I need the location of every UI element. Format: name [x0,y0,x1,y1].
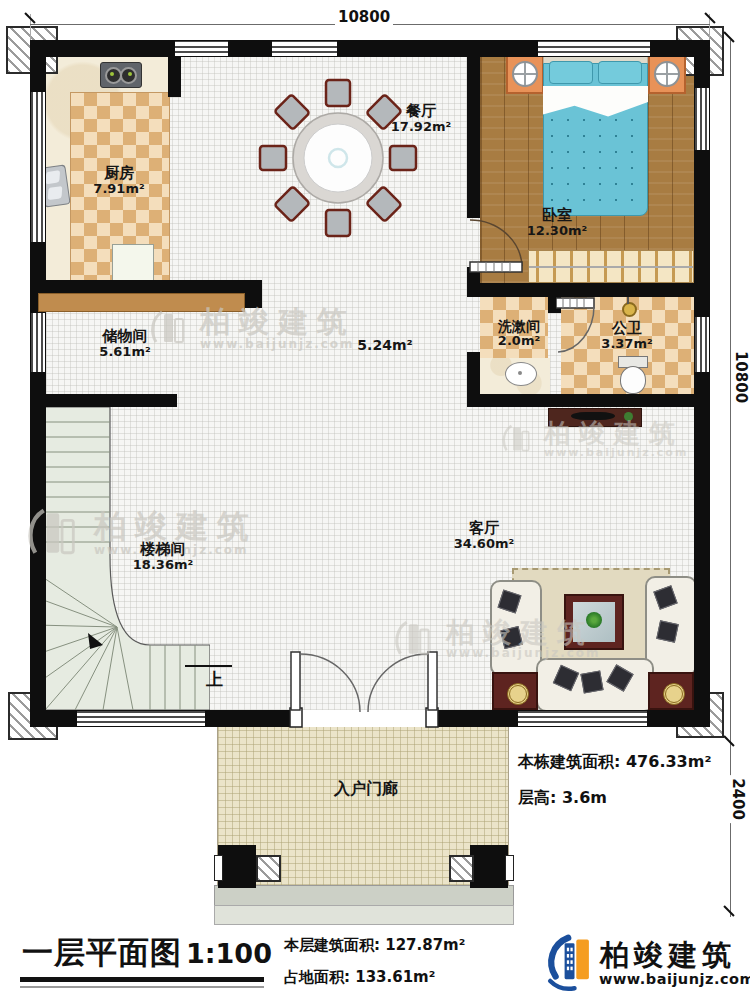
porch-pilaster [256,855,281,882]
window [518,711,647,726]
stove [100,62,142,88]
room-label-storage: 储物间5.61m² [99,328,150,360]
toilet [620,366,646,394]
floor-height-note: 层高: 3.6m [518,788,607,809]
entry-double-door [288,646,440,728]
nightstand [506,54,544,94]
cushion [656,620,679,643]
window [77,711,205,726]
porch-step [214,905,514,925]
window [31,313,45,372]
dim-tick [704,12,715,23]
porch-pilaster [449,855,474,882]
title-underline [20,977,264,982]
wall-storage-bottom [30,394,177,407]
porch-column-slot [214,855,223,881]
dimension-line-right-lower [730,745,731,917]
brand-url: www.baijunjz.com [599,971,750,987]
bedroom-door [468,214,528,276]
dimension-right-lower: 2400 [729,775,747,823]
wall-kitchen-storage [30,280,262,293]
porch-column [470,845,508,888]
dim-tick [723,31,734,42]
room-label-porch: 入户门廊 [334,780,398,798]
dim-tick [723,905,734,916]
kitchen-appliance [112,244,154,284]
floor-plan: 10800 10800 2400 [0,0,750,1004]
porch-column-slot [505,855,514,881]
window [31,92,45,242]
dim-tick [723,735,734,746]
sheet-title: 一层平面图 [22,932,182,974]
wall-bedroom-bottom [467,283,710,297]
land-area-note: 占地面积: 133.61m² [284,968,435,987]
washroom-sink [505,362,537,386]
up-direction-line [185,665,232,667]
wall-washroom-bottom [467,394,710,407]
room-label-corridor: 5.24m² [357,337,412,353]
brand-name: 柏竣建筑 [600,936,736,976]
nightstand [648,54,686,94]
window [272,41,337,56]
window [695,88,709,150]
dimension-top: 10800 [335,8,393,26]
dimension-line-right-upper [730,40,731,745]
dimension-right-upper: 10800 [732,348,750,406]
room-label-washroom: 洗漱间2.0m² [498,318,540,349]
room-label-kitchen: 厨房7.91m² [93,165,144,197]
side-table [492,672,538,710]
sideboard [38,293,245,312]
porch-step [214,885,514,907]
sheet-scale: 1:100 [186,938,272,969]
cushion [580,670,603,693]
coffee-table [564,594,624,650]
window [538,41,650,56]
room-label-living: 客厅34.60m² [454,520,514,552]
ceiling-light [622,302,637,317]
room-label-stairwell: 楼梯间18.36m² [133,541,193,573]
window [695,317,709,372]
stairs-up-label: 上 [206,668,223,691]
porch-column [218,845,256,888]
bed [543,56,648,216]
room-label-toilet: 公卫3.37m² [601,320,652,352]
floor-area-note: 本层建筑面积: 127.87m² [284,936,465,955]
wardrobe [528,250,694,283]
window [175,41,228,56]
building-area-note: 本栋建筑面积: 476.33m² [518,752,711,773]
tv-cabinet [548,408,642,427]
brand-logo-icon [543,931,597,995]
room-label-dining: 餐厅17.92m² [391,103,451,135]
wall-bedroom-left [467,40,480,218]
dining-table-set [256,76,420,240]
toilet-door [556,296,602,358]
room-label-bedroom: 卧室12.30m² [527,207,587,239]
brand-logo [543,931,597,995]
title-underline-thin [20,986,264,988]
side-table [648,672,694,710]
